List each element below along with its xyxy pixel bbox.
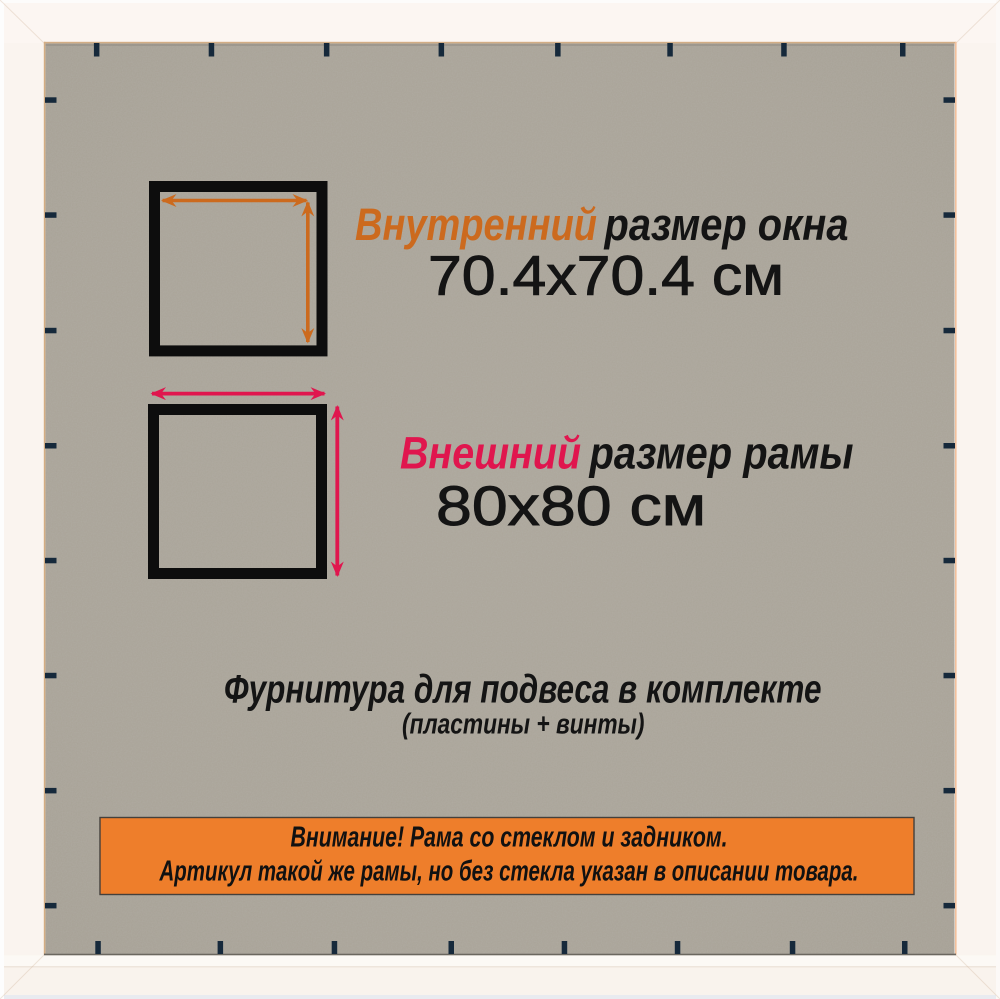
svg-text:Внимание! Рама со стеклом и за: Внимание! Рама со стеклом и задником. — [291, 822, 728, 854]
svg-text:размер окна: размер окна — [604, 199, 849, 250]
svg-text:80x80 см: 80x80 см — [436, 475, 706, 537]
svg-text:Внешний: Внешний — [400, 428, 581, 479]
svg-text:(пластины + винты): (пластины + винты) — [402, 709, 645, 741]
svg-text:70.4x70.4 см: 70.4x70.4 см — [428, 245, 784, 307]
svg-text:размер рамы: размер рамы — [589, 428, 854, 479]
svg-text:Внутренний: Внутренний — [355, 199, 597, 250]
svg-text:Артикул такой же рамы, но без: Артикул такой же рамы, но без стекла ука… — [159, 855, 859, 887]
svg-text:Фурнитура для подвеса в компле: Фурнитура для подвеса в комплекте — [224, 668, 822, 712]
